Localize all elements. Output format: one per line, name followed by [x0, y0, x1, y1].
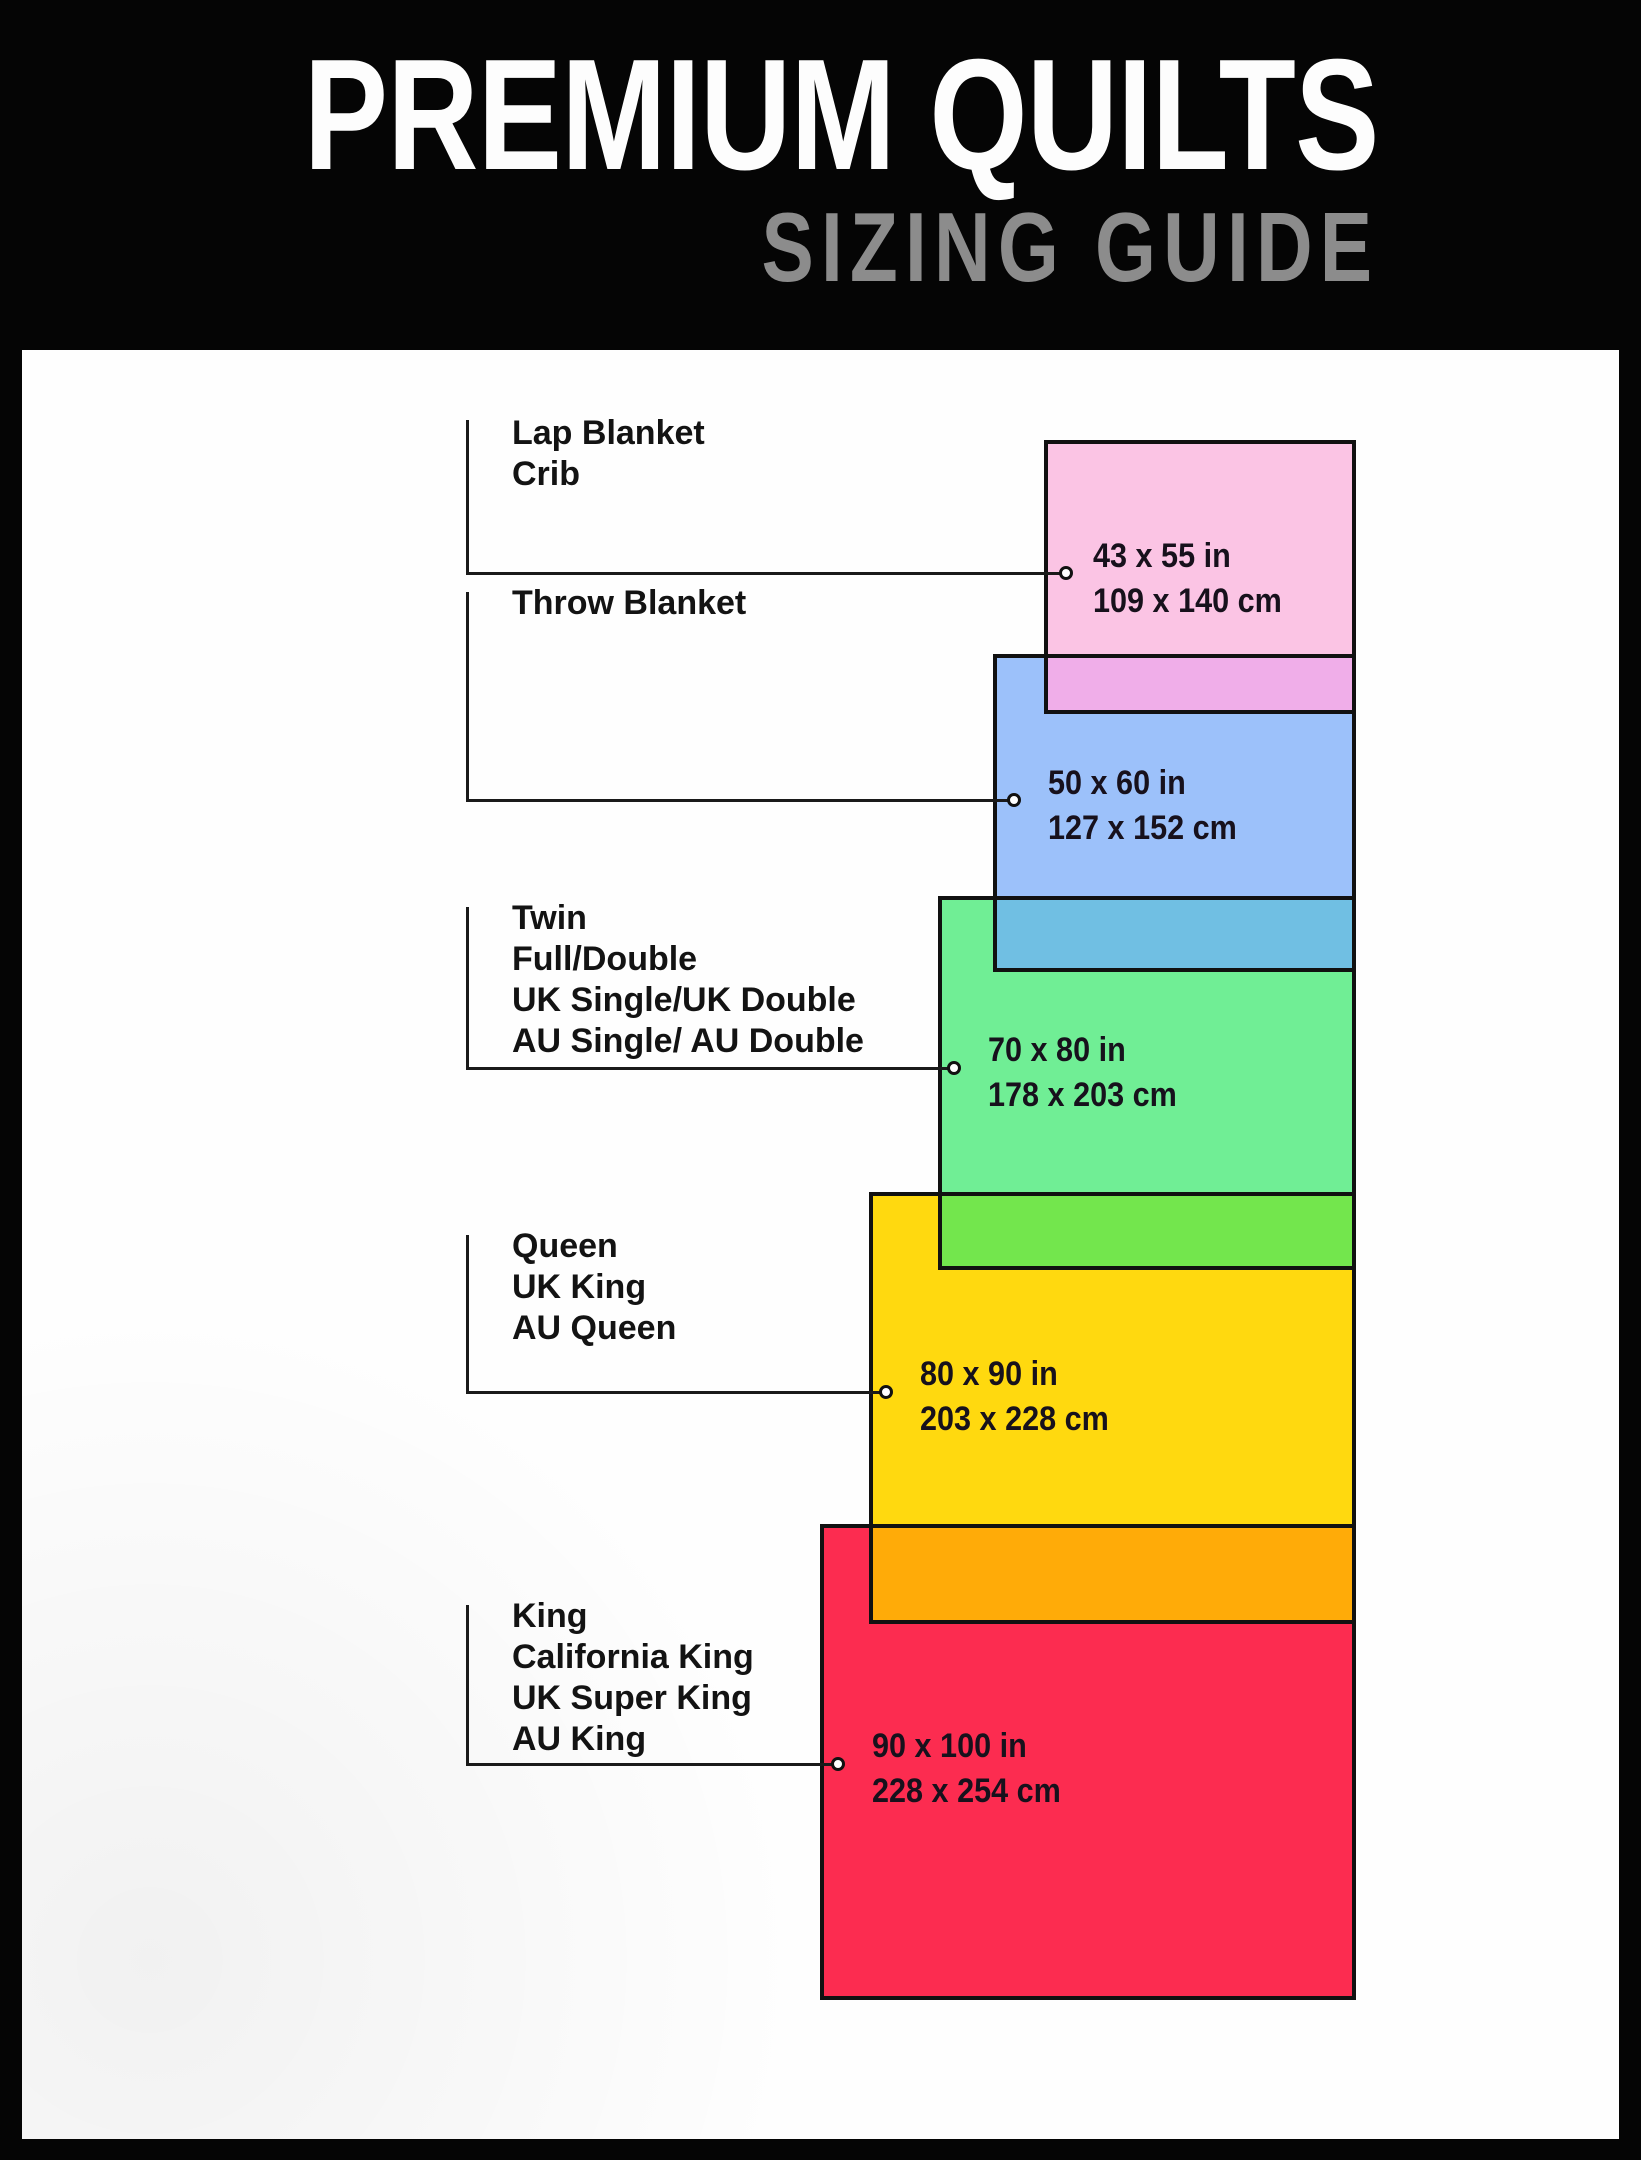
dimension-text-cm: 109 x 140 cm	[1093, 579, 1282, 624]
dimension-text-king-california-king: 90 x 100 in228 x 254 cm	[872, 1724, 1061, 1814]
size-label-line: UK Single/UK Double	[512, 980, 864, 1021]
dimension-text-in: 70 x 80 in	[988, 1028, 1177, 1073]
size-label-king-california-king: KingCalifornia KingUK Super KingAU King	[512, 1596, 754, 1760]
size-label-line: Crib	[512, 454, 705, 495]
size-label-twin-full-double: TwinFull/DoubleUK Single/UK DoubleAU Sin…	[512, 898, 864, 1062]
callout-marker-circle-twin-full-double	[947, 1061, 961, 1075]
size-label-line: King	[512, 1596, 754, 1637]
size-label-line: Twin	[512, 898, 864, 939]
callout-vline-throw-blanket	[466, 592, 469, 800]
size-label-line: AU Queen	[512, 1308, 676, 1349]
size-label-line: California King	[512, 1637, 754, 1678]
size-label-lap-blanket-crib: Lap BlanketCrib	[512, 413, 705, 495]
size-label-line: UK King	[512, 1267, 676, 1308]
callout-hline-twin-full-double	[466, 1067, 954, 1070]
callout-hline-king-california-king	[466, 1763, 838, 1766]
callout-marker-circle-throw-blanket	[1007, 793, 1021, 807]
dimension-text-in: 50 x 60 in	[1048, 761, 1237, 806]
size-label-line: Queen	[512, 1226, 676, 1267]
callout-vline-lap-blanket-crib	[466, 420, 469, 573]
callout-hline-lap-blanket-crib	[466, 572, 1066, 575]
dimension-text-lap-blanket-crib: 43 x 55 in109 x 140 cm	[1093, 534, 1282, 624]
callout-vline-queen-uk-king-au-queen	[466, 1235, 469, 1392]
dimension-text-cm: 203 x 228 cm	[920, 1397, 1109, 1442]
dimension-text-in: 43 x 55 in	[1093, 534, 1282, 579]
size-label-line: UK Super King	[512, 1678, 754, 1719]
dimension-text-in: 80 x 90 in	[920, 1352, 1109, 1397]
size-label-line: AU King	[512, 1719, 754, 1760]
callout-marker-circle-queen-uk-king-au-queen	[879, 1385, 893, 1399]
callout-vline-twin-full-double	[466, 907, 469, 1068]
dimension-text-cm: 228 x 254 cm	[872, 1769, 1061, 1814]
size-label-line: Lap Blanket	[512, 413, 705, 454]
dimension-text-throw-blanket: 50 x 60 in127 x 152 cm	[1048, 761, 1237, 851]
size-label-queen-uk-king-au-queen: QueenUK KingAU Queen	[512, 1226, 676, 1349]
dimension-text-cm: 178 x 203 cm	[988, 1073, 1177, 1118]
dimension-text-queen-uk-king-au-queen: 80 x 90 in203 x 228 cm	[920, 1352, 1109, 1442]
size-label-line: Throw Blanket	[512, 583, 746, 624]
dimension-text-cm: 127 x 152 cm	[1048, 806, 1237, 851]
callout-vline-king-california-king	[466, 1605, 469, 1764]
infographic-canvas: PREMIUM QUILTS SIZING GUIDE Lap BlanketC…	[0, 0, 1641, 2160]
callout-marker-circle-king-california-king	[831, 1757, 845, 1771]
callout-hline-queen-uk-king-au-queen	[466, 1391, 886, 1394]
size-label-line: Full/Double	[512, 939, 864, 980]
page-title: PREMIUM QUILTS	[304, 36, 1379, 194]
size-label-line: AU Single/ AU Double	[512, 1021, 864, 1062]
size-label-throw-blanket: Throw Blanket	[512, 583, 746, 624]
page-subtitle: SIZING GUIDE	[761, 198, 1379, 296]
callout-hline-throw-blanket	[466, 799, 1014, 802]
callout-marker-circle-lap-blanket-crib	[1059, 566, 1073, 580]
dimension-text-twin-full-double: 70 x 80 in178 x 203 cm	[988, 1028, 1177, 1118]
dimension-text-in: 90 x 100 in	[872, 1724, 1061, 1769]
